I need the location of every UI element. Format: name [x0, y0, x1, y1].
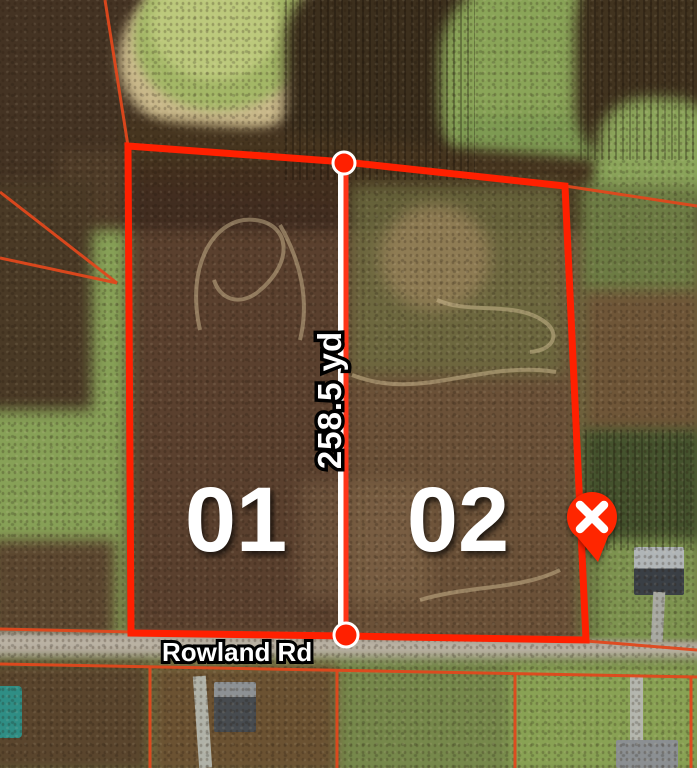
measurement-endpoint-bottom[interactable]: [334, 623, 358, 647]
map-pin[interactable]: [567, 492, 617, 562]
parcel-label-01[interactable]: 01: [185, 469, 287, 571]
measurement-value: 258.5 yd: [311, 331, 348, 469]
aerial-parcel-map[interactable]: 01 02 258.5 yd Rowland Rd: [0, 0, 697, 768]
measurement-endpoint-top[interactable]: [333, 152, 355, 174]
road-name-label: Rowland Rd: [162, 637, 312, 667]
parcel-label-02[interactable]: 02: [407, 469, 509, 571]
